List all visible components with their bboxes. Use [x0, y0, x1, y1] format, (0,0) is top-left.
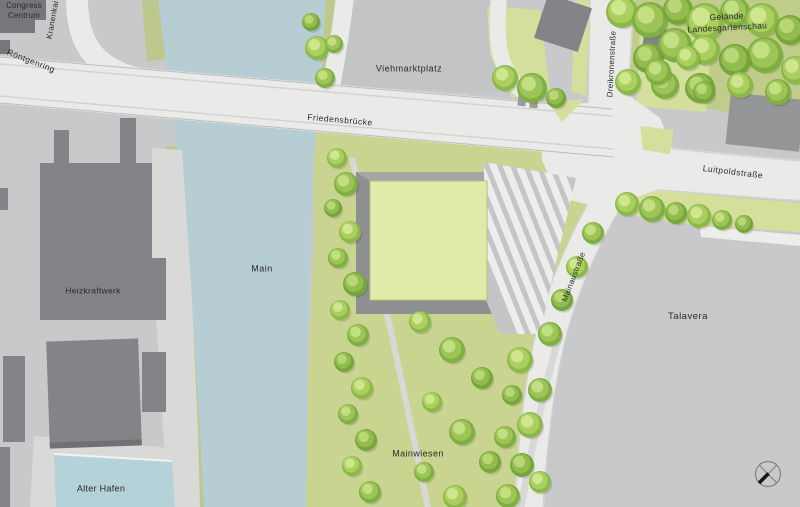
traffic-island	[640, 126, 674, 154]
site-plan-canvas	[0, 0, 800, 507]
viehmarktplatz-plaza	[332, 0, 502, 94]
alter-hafen-basin	[54, 454, 175, 507]
new-building-site-square	[370, 181, 487, 300]
site-plan-map: Congress CentrumKranenkaiRöntgenringVieh…	[0, 0, 800, 507]
